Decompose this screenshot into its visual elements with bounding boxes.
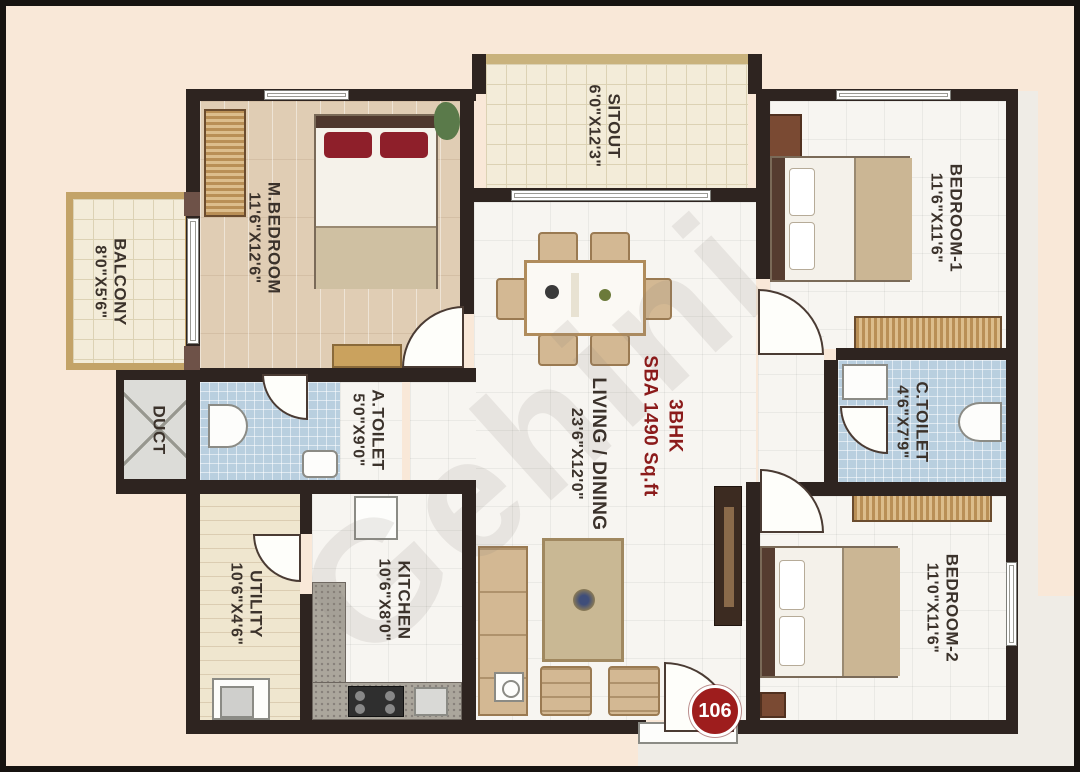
tv-unit — [714, 486, 742, 626]
wall — [186, 720, 646, 734]
wall — [472, 54, 486, 94]
wall — [824, 360, 838, 484]
wall — [462, 480, 476, 734]
bed-headboard — [762, 548, 775, 676]
wall — [460, 89, 474, 314]
room-label-kitchen: KITCHEN 10'6"X8'0" — [373, 559, 414, 642]
room-dims: 10'6"X4'6" — [225, 563, 245, 646]
ledge-right — [1018, 91, 1038, 734]
side-table — [494, 672, 524, 702]
dresser — [332, 344, 402, 368]
toilet-wc — [208, 404, 248, 448]
side-table — [760, 692, 786, 718]
room-name: BEDROOM-2 — [941, 554, 962, 662]
plan-title-type: 3BHK — [662, 355, 687, 496]
room-dims: 11'6"X11'6" — [925, 164, 945, 272]
room-name: KITCHEN — [393, 559, 414, 642]
tv-screen — [724, 507, 734, 607]
room-name: M.BEDROOM — [263, 182, 284, 294]
wall — [116, 370, 124, 492]
bed-headboard — [772, 158, 785, 280]
room-name: C.TOILET — [911, 381, 932, 462]
wall — [746, 482, 760, 734]
room-name: LIVING / DINING — [586, 377, 610, 530]
window — [1006, 562, 1017, 646]
room-label-atoilet: A.TOILET 5'0"X9'0" — [347, 389, 388, 470]
room-name: A.TOILET — [367, 389, 388, 470]
window — [836, 90, 951, 100]
room-dims: 10'6"X8'0" — [373, 559, 393, 642]
washing-machine — [212, 678, 270, 720]
plant — [434, 102, 460, 140]
room-dims: 5'0"X9'0" — [347, 389, 367, 470]
wall — [756, 89, 770, 279]
room-label-utility: UTILITY 10'6"X4'6" — [225, 563, 266, 646]
wall — [472, 54, 762, 64]
room-label-duct: DUCT — [148, 405, 169, 454]
unit-number: 106 — [698, 700, 731, 723]
floor-lamp — [573, 589, 595, 611]
bed-blanket — [842, 548, 900, 676]
wardrobe — [854, 316, 1002, 352]
room-name: DUCT — [148, 405, 169, 454]
wall — [734, 720, 1018, 734]
plan-title-area: SBA 1490 Sq.ft — [637, 355, 662, 496]
room-name: BALCONY — [109, 238, 130, 326]
rug — [542, 538, 624, 662]
floorplan-canvas: Gehini BALCONY 8'0"X5'6" M.BEDROOM 11'6"… — [0, 0, 1080, 772]
room-label-balcony: BALCONY 8'0"X5'6" — [89, 238, 130, 326]
wall — [300, 480, 410, 492]
burner — [385, 704, 395, 714]
wall — [300, 594, 312, 722]
washer-drum — [220, 686, 254, 718]
vanity-counter — [842, 364, 888, 400]
side-table-decor — [502, 680, 520, 698]
burner — [355, 691, 365, 701]
toilet-wc — [958, 402, 1002, 442]
wall — [116, 480, 476, 494]
bedside-rug — [768, 114, 802, 160]
armchair — [608, 666, 660, 716]
bed — [314, 114, 438, 289]
kitchen-sink — [414, 687, 448, 716]
bed-pillow — [779, 616, 805, 666]
wall — [116, 370, 200, 380]
room-name: BEDROOM-1 — [945, 164, 966, 272]
burner — [355, 704, 365, 714]
wall — [186, 89, 200, 722]
room-dims: 11'6"X12'6" — [243, 182, 263, 294]
wall — [184, 192, 200, 216]
room-label-sitout: SITOUT 6'0"X12'3" — [583, 85, 624, 168]
room-dims: 11'0"X11'6" — [921, 554, 941, 662]
plan-title: 3BHK SBA 1490 Sq.ft — [637, 355, 686, 496]
window — [264, 90, 349, 100]
room-label-ctoilet: C.TOILET 4'6"X7'9" — [891, 381, 932, 462]
wardrobe — [204, 109, 246, 217]
bed-pillow — [789, 168, 815, 216]
room-name: UTILITY — [245, 563, 266, 646]
room-label-living-dining: LIVING / DINING 23'6"X12'0" — [566, 377, 610, 530]
bed — [770, 156, 910, 282]
bed-blanket — [854, 158, 912, 280]
bed-pillow — [380, 132, 428, 158]
bed-blanket — [316, 226, 436, 289]
wash-basin — [302, 450, 338, 478]
armchair — [540, 666, 592, 716]
room-dims: 4'6"X7'9" — [891, 381, 911, 462]
room-dims: 8'0"X5'6" — [89, 238, 109, 326]
room-dims: 23'6"X12'0" — [566, 377, 586, 530]
room-dims: 6'0"X12'3" — [583, 85, 603, 168]
room-name: SITOUT — [603, 85, 624, 168]
wall — [748, 54, 762, 94]
bed-headboard — [316, 116, 436, 128]
bed-pillow — [779, 560, 805, 610]
bed-pillow — [324, 132, 372, 158]
wall — [184, 346, 200, 370]
room-label-bedroom1: BEDROOM-1 11'6"X11'6" — [925, 164, 966, 272]
balcony-door — [187, 218, 199, 344]
room-label-bedroom2: BEDROOM-2 11'0"X11'6" — [921, 554, 962, 662]
wall — [300, 486, 312, 534]
room-label-master-bedroom: M.BEDROOM 11'6"X12'6" — [243, 182, 284, 294]
wall — [186, 368, 476, 382]
bed-pillow — [789, 222, 815, 270]
sliding-door — [511, 190, 711, 201]
unit-number-badge: 106 — [689, 685, 741, 737]
wall — [836, 348, 1018, 360]
bed — [760, 546, 898, 678]
